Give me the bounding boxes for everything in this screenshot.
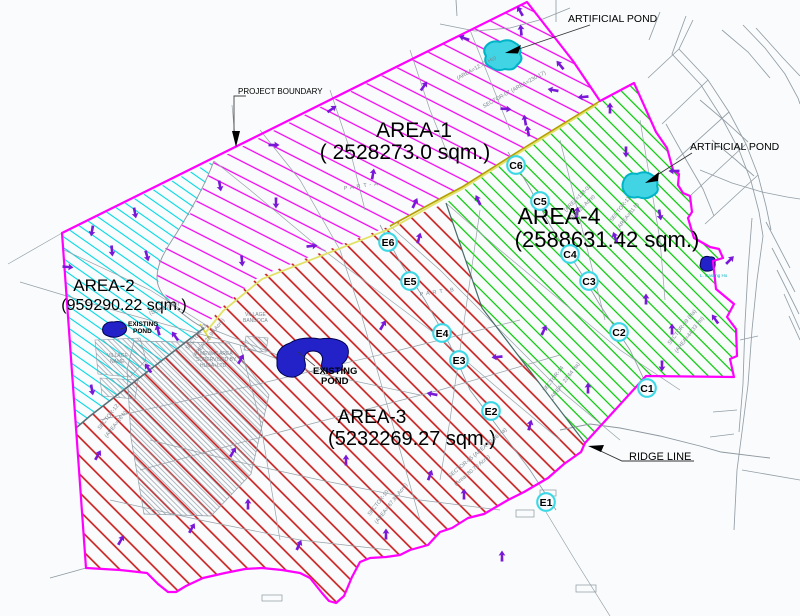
svg-text:ARTIFICIAL POND: ARTIFICIAL POND — [690, 141, 780, 153]
svg-text:AREA-2: AREA-2 — [73, 276, 134, 295]
svg-text:C4: C4 — [563, 249, 577, 261]
svg-text:POND: POND — [133, 328, 152, 335]
svg-text:C2: C2 — [612, 327, 626, 339]
svg-text:HUDA+LTD: HUDA+LTD — [200, 363, 227, 369]
svg-text:AREA-1: AREA-1 — [376, 119, 452, 142]
svg-text:E4: E4 — [436, 328, 449, 340]
svg-text:(2588631.42 sqm.): (2588631.42 sqm.) — [515, 227, 700, 252]
svg-text:AREA-4: AREA-4 — [517, 203, 600, 229]
svg-text:EXISTING: EXISTING — [128, 321, 158, 328]
svg-text:C3: C3 — [582, 276, 596, 288]
svg-text:AREA-3: AREA-3 — [338, 407, 407, 428]
svg-text:C5: C5 — [533, 196, 547, 208]
svg-text:NAME: NAME — [110, 359, 125, 365]
svg-text:BANDOCA: BANDOCA — [243, 318, 268, 324]
svg-text:POND: POND — [321, 376, 349, 387]
svg-text:E5: E5 — [404, 276, 417, 288]
svg-text:E1: E1 — [540, 497, 553, 509]
svg-text:(5232269.27 sqm.): (5232269.27 sqm.) — [328, 428, 496, 450]
svg-text:C6: C6 — [509, 160, 523, 172]
svg-text:( 2528273.0 sqm.): ( 2528273.0 sqm.) — [320, 141, 490, 164]
svg-text:C1: C1 — [640, 383, 654, 395]
svg-text:E6: E6 — [382, 237, 395, 249]
svg-text:E2: E2 — [485, 406, 498, 418]
svg-text:L. Casting Ho: L. Casting Ho — [700, 273, 728, 278]
svg-text:E3: E3 — [453, 355, 466, 367]
svg-text:ARTIFICIAL POND: ARTIFICIAL POND — [568, 13, 658, 25]
svg-text:PROJECT BOUNDARY: PROJECT BOUNDARY — [238, 87, 323, 96]
